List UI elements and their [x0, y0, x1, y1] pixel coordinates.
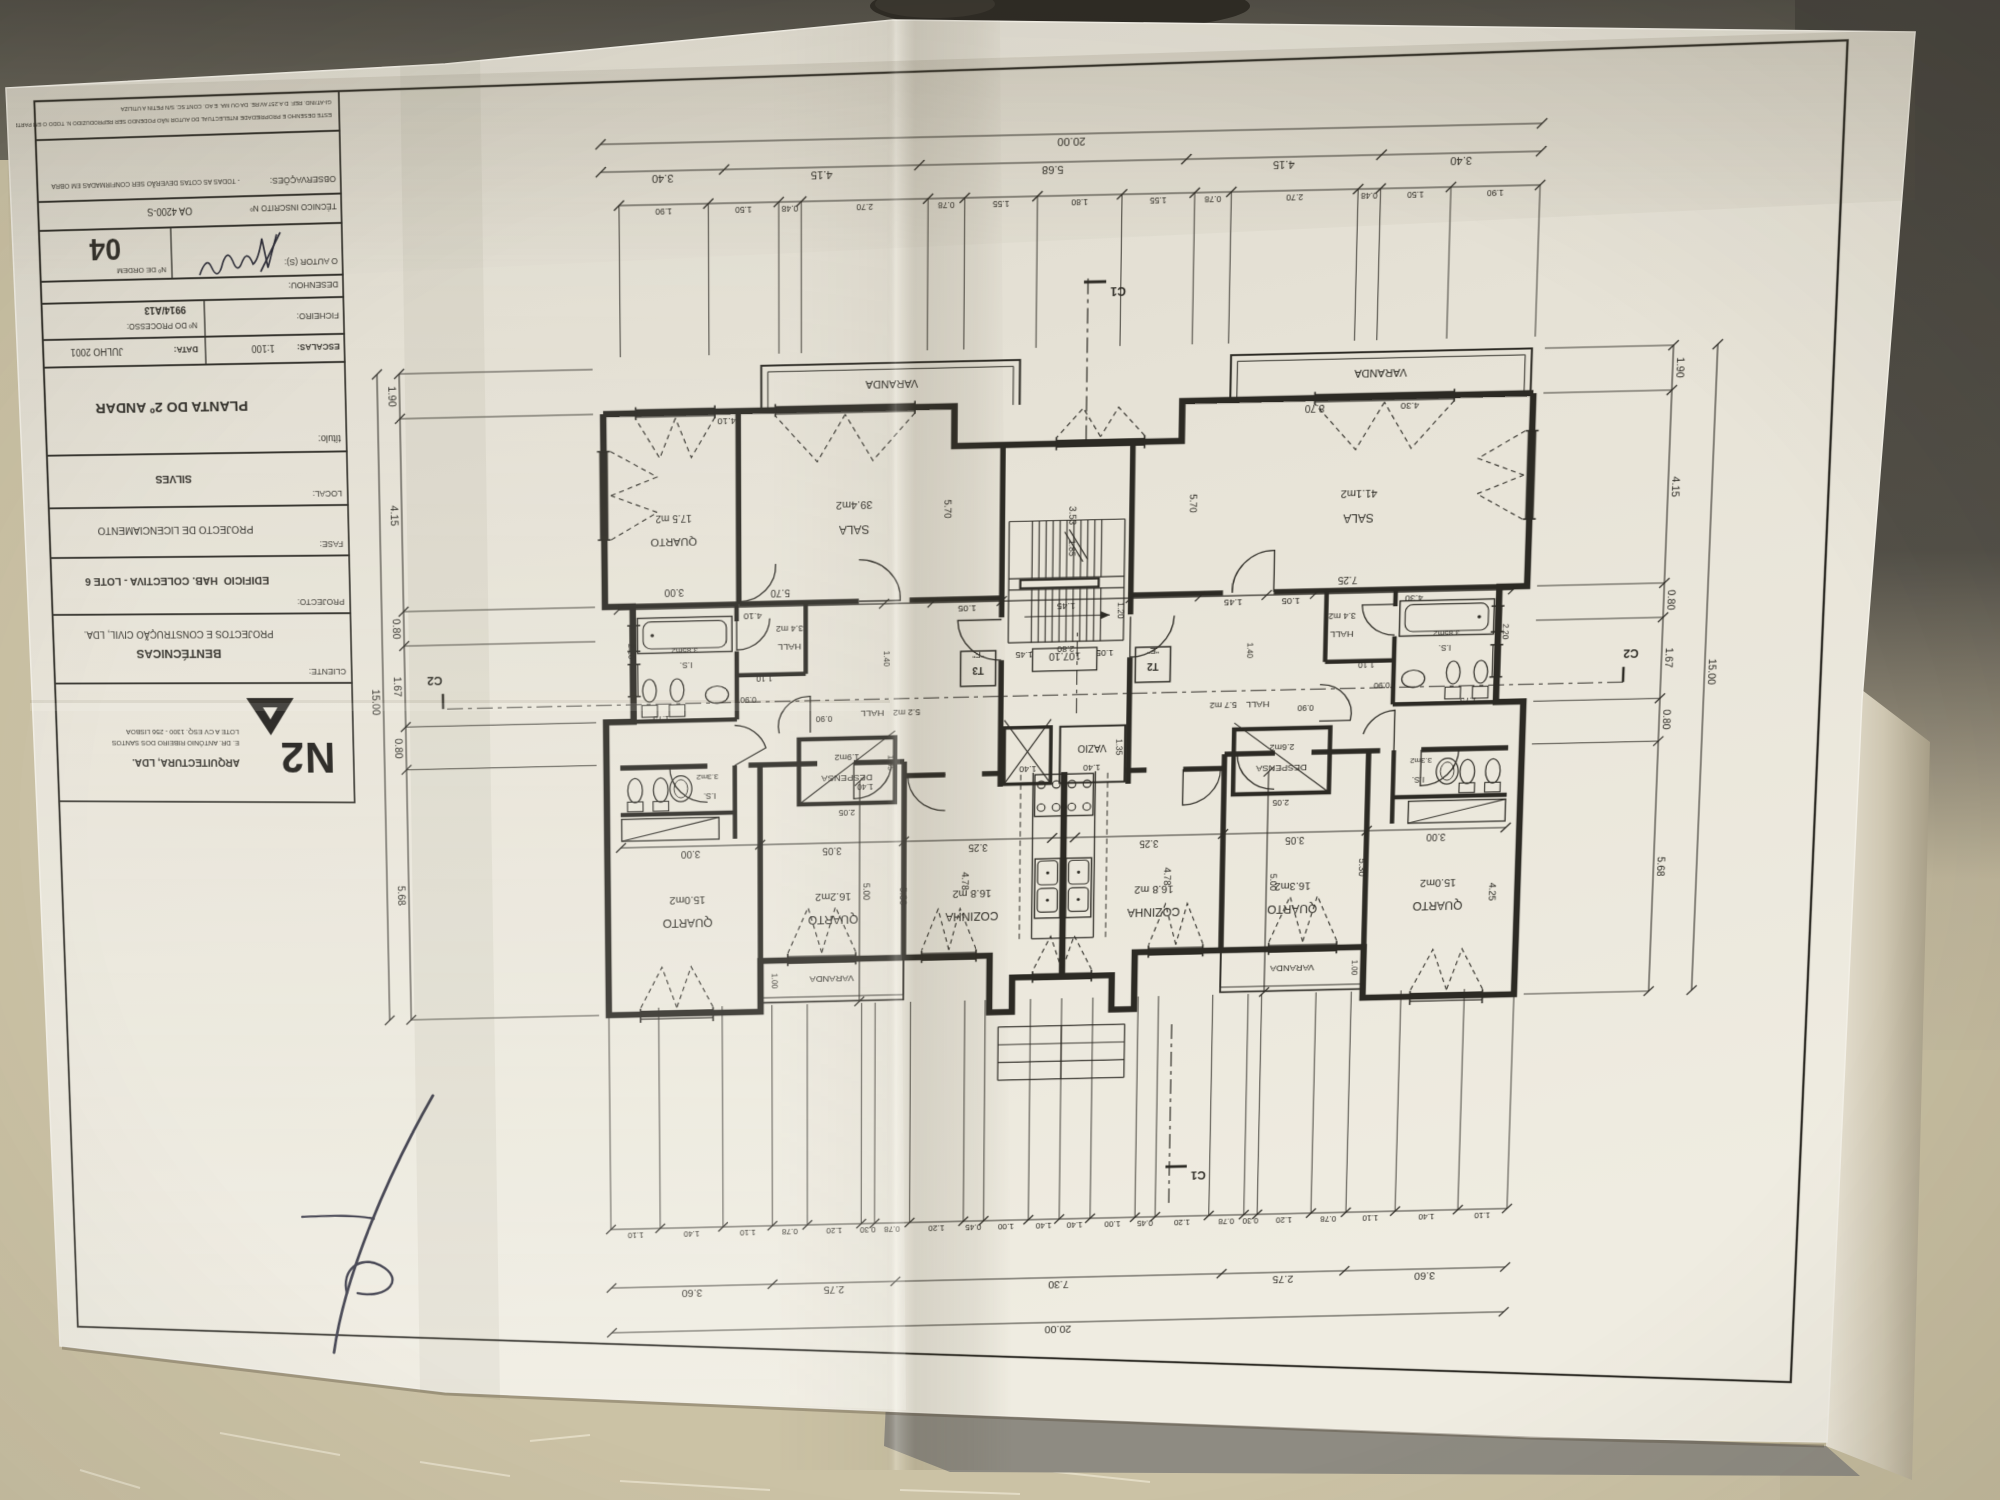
svg-text:2.20: 2.20 — [1500, 624, 1510, 640]
svg-text:8.70: 8.70 — [1305, 402, 1325, 414]
svg-text:15.00: 15.00 — [369, 689, 382, 716]
svg-text:3.85m2: 3.85m2 — [671, 646, 698, 656]
svg-text:QUARTO: QUARTO — [1412, 899, 1462, 912]
svg-text:1.45: 1.45 — [1015, 650, 1033, 660]
svg-text:5.70: 5.70 — [941, 500, 953, 519]
svg-text:0.45: 0.45 — [965, 1223, 982, 1232]
svg-text:4.30: 4.30 — [1401, 401, 1420, 412]
svg-text:3.4 m2: 3.4 m2 — [776, 623, 804, 634]
svg-text:C2: C2 — [1623, 646, 1639, 658]
svg-text:1.40: 1.40 — [1245, 642, 1255, 658]
svg-text:0.78: 0.78 — [1218, 1217, 1235, 1226]
svg-text:39.4m2: 39.4m2 — [836, 498, 873, 511]
svg-text:2.6m2: 2.6m2 — [1269, 742, 1294, 752]
svg-text:VARANDA: VARANDA — [1354, 366, 1407, 379]
svg-text:1.9m2: 1.9m2 — [834, 752, 859, 762]
svg-text:1.00: 1.00 — [770, 973, 779, 989]
svg-text:4.10: 4.10 — [717, 416, 736, 427]
svg-text:1.20: 1.20 — [1173, 1218, 1190, 1227]
svg-text:5.70: 5.70 — [771, 586, 790, 597]
svg-text:1.05: 1.05 — [958, 603, 976, 613]
svg-text:I.S.: I.S. — [680, 660, 693, 669]
svg-text:1.67: 1.67 — [391, 676, 404, 697]
svg-text:1.00: 1.00 — [1350, 960, 1360, 976]
svg-text:15.0m2: 15.0m2 — [669, 893, 705, 906]
svg-text:0.48: 0.48 — [1360, 191, 1377, 201]
svg-text:5.68: 5.68 — [1654, 857, 1667, 877]
svg-text:3.05: 3.05 — [822, 845, 841, 856]
svg-text:16.3m2: 16.3m2 — [1274, 879, 1310, 892]
svg-text:0.80: 0.80 — [1660, 709, 1673, 730]
svg-text:VARANDA: VARANDA — [809, 973, 854, 984]
svg-text:3.25: 3.25 — [1139, 837, 1158, 848]
svg-text:0.78: 0.78 — [937, 200, 954, 210]
svg-text:4.30: 4.30 — [1405, 593, 1424, 603]
svg-text:3.4 m2: 3.4 m2 — [1328, 611, 1356, 622]
svg-text:DESPENSA: DESPENSA — [1255, 762, 1307, 773]
svg-text:VAZIO: VAZIO — [1078, 742, 1107, 754]
svg-text:VARANDA: VARANDA — [865, 377, 918, 390]
svg-text:1.20: 1.20 — [1116, 602, 1127, 619]
svg-text:0.78: 0.78 — [884, 1224, 901, 1233]
svg-text:1.50: 1.50 — [735, 205, 752, 215]
svg-text:5.68: 5.68 — [395, 886, 408, 906]
svg-text:1.05: 1.05 — [1096, 648, 1114, 658]
svg-text:1.10: 1.10 — [739, 1228, 756, 1237]
svg-text:4.78: 4.78 — [959, 872, 970, 890]
svg-text:1.40: 1.40 — [1035, 1221, 1052, 1230]
svg-text:3.60: 3.60 — [681, 1287, 702, 1299]
svg-text:1.90: 1.90 — [1673, 357, 1686, 378]
svg-text:3.00: 3.00 — [1426, 831, 1445, 842]
svg-text:3.00: 3.00 — [681, 848, 700, 859]
svg-text:4.15: 4.15 — [811, 168, 833, 181]
svg-text:5.00: 5.00 — [1268, 873, 1279, 890]
svg-text:0.80: 0.80 — [1664, 590, 1677, 611]
svg-text:2.75: 2.75 — [823, 1283, 844, 1295]
svg-text:C2: C2 — [427, 674, 442, 686]
svg-text:C1: C1 — [1190, 1168, 1206, 1180]
svg-text:7.30: 7.30 — [1048, 1278, 1069, 1290]
svg-text:5.7 m2: 5.7 m2 — [1209, 700, 1237, 711]
svg-text:1.90: 1.90 — [1486, 188, 1504, 198]
svg-text:0.30: 0.30 — [1242, 1216, 1259, 1225]
svg-text:HALL: HALL — [860, 708, 884, 718]
svg-text:2.80: 2.80 — [1057, 644, 1075, 654]
svg-text:2.20: 2.20 — [626, 644, 636, 660]
svg-text:0.78: 0.78 — [781, 1227, 798, 1236]
svg-text:5.00: 5.00 — [861, 883, 871, 900]
svg-text:HALL: HALL — [1246, 699, 1270, 709]
svg-text:1.05: 1.05 — [1281, 596, 1300, 606]
svg-text:1.20: 1.20 — [826, 1226, 842, 1235]
svg-text:2.05: 2.05 — [1272, 798, 1289, 807]
svg-text:T2: T2 — [1147, 660, 1159, 671]
svg-text:QUARTO: QUARTO — [662, 916, 712, 929]
svg-text:1.10: 1.10 — [756, 674, 773, 683]
svg-text:1.55: 1.55 — [1149, 195, 1166, 205]
svg-text:0.90: 0.90 — [815, 714, 832, 723]
svg-text:1.85: 1.85 — [1067, 539, 1078, 556]
svg-text:7.25: 7.25 — [1338, 573, 1358, 584]
svg-text:QUARTO: QUARTO — [808, 913, 858, 926]
svg-text:3.00: 3.00 — [664, 586, 683, 597]
svg-text:I.S.: I.S. — [1438, 643, 1451, 652]
svg-text:3.40: 3.40 — [651, 171, 673, 184]
svg-text:2.70: 2.70 — [1286, 192, 1303, 202]
svg-text:4.78: 4.78 — [1161, 867, 1173, 885]
svg-text:1.50: 1.50 — [1407, 189, 1425, 199]
svg-text:5.2 m2: 5.2 m2 — [893, 707, 920, 718]
svg-text:0.30: 0.30 — [859, 1225, 876, 1234]
svg-text:HALL: HALL — [1330, 629, 1354, 640]
svg-text:C1: C1 — [1110, 284, 1126, 297]
svg-text:0.80: 0.80 — [392, 738, 405, 759]
svg-text:3.53: 3.53 — [1066, 506, 1078, 525]
svg-text:4.15: 4.15 — [1669, 476, 1682, 497]
svg-text:0.90: 0.90 — [1297, 703, 1314, 712]
svg-text:0.78: 0.78 — [1204, 194, 1221, 204]
svg-text:1.75: 1.75 — [652, 714, 669, 723]
svg-text:15.00: 15.00 — [1705, 659, 1719, 686]
svg-text:5.30: 5.30 — [1356, 858, 1368, 876]
svg-text:1.00: 1.00 — [997, 1222, 1014, 1231]
svg-text:20.00: 20.00 — [1057, 134, 1085, 147]
svg-text:HALL: HALL — [778, 641, 802, 652]
svg-text:1.20: 1.20 — [1275, 1215, 1292, 1224]
svg-text:1.40: 1.40 — [1019, 764, 1037, 774]
svg-text:16.2m2: 16.2m2 — [815, 890, 851, 903]
svg-text:T3: T3 — [972, 664, 984, 675]
svg-text:QUARTO: QUARTO — [650, 535, 697, 548]
svg-text:16.8 m2: 16.8 m2 — [952, 887, 991, 900]
svg-text:1.00: 1.00 — [1104, 1219, 1121, 1228]
svg-text:VARANDA: VARANDA — [1269, 962, 1314, 973]
svg-text:3.60: 3.60 — [1414, 1269, 1435, 1281]
svg-text:17.5 m2: 17.5 m2 — [656, 512, 692, 524]
svg-text:1.10: 1.10 — [1362, 1213, 1379, 1222]
svg-text:41.1m2: 41.1m2 — [1340, 487, 1377, 500]
svg-text:0.45: 0.45 — [1136, 1219, 1153, 1228]
svg-text:1.40: 1.40 — [1083, 763, 1101, 773]
svg-text:1.10: 1.10 — [627, 1230, 644, 1239]
svg-text:1.80: 1.80 — [1071, 197, 1088, 207]
svg-text:5.68: 5.68 — [1042, 163, 1064, 176]
svg-text:1.40: 1.40 — [857, 782, 874, 791]
svg-text:3.85m2: 3.85m2 — [1433, 629, 1460, 639]
svg-text:1.10: 1.10 — [1358, 660, 1375, 669]
svg-text:COZINHA: COZINHA — [1127, 905, 1181, 918]
svg-text:1.90: 1.90 — [655, 206, 672, 216]
svg-text:3.25: 3.25 — [968, 841, 987, 852]
svg-text:0.48: 0.48 — [781, 203, 798, 213]
svg-text:1.90: 1.90 — [385, 386, 398, 407]
svg-text:1.40: 1.40 — [1418, 1212, 1435, 1221]
svg-text:0.78: 0.78 — [1320, 1214, 1337, 1223]
svg-text:SALA: SALA — [1343, 510, 1374, 523]
svg-text:1.40: 1.40 — [1066, 1220, 1083, 1229]
svg-text:1.45: 1.45 — [1224, 597, 1243, 607]
svg-text:1.45: 1.45 — [1057, 601, 1075, 611]
svg-text:1.67: 1.67 — [1662, 647, 1675, 668]
svg-text:5.70: 5.70 — [1187, 494, 1199, 513]
svg-text:SALA: SALA — [839, 522, 870, 535]
svg-text:5.30: 5.30 — [897, 887, 908, 905]
svg-text:3.40: 3.40 — [1450, 154, 1472, 167]
svg-text:QUARTO: QUARTO — [1267, 902, 1317, 915]
svg-text:4.10: 4.10 — [744, 611, 762, 621]
svg-text:4.15: 4.15 — [1273, 158, 1295, 171]
svg-text:1.20: 1.20 — [928, 1223, 945, 1232]
svg-text:1.35: 1.35 — [886, 755, 895, 771]
svg-text:1.10: 1.10 — [1474, 1211, 1491, 1220]
svg-text:COZINHA: COZINHA — [945, 909, 998, 922]
svg-text:1.75: 1.75 — [1460, 695, 1477, 704]
svg-text:3.3m2: 3.3m2 — [696, 773, 718, 782]
svg-text:2.05: 2.05 — [838, 808, 855, 817]
svg-text:I.S.: I.S. — [1412, 775, 1425, 784]
svg-text:2.75: 2.75 — [1272, 1273, 1293, 1285]
svg-text:4.15: 4.15 — [387, 505, 400, 526]
svg-text:4.25: 4.25 — [1486, 883, 1498, 901]
svg-text:1.40: 1.40 — [882, 651, 891, 667]
svg-text:15.0m2: 15.0m2 — [1420, 876, 1456, 889]
svg-text:20.00: 20.00 — [1044, 1323, 1071, 1335]
svg-text:I.S.: I.S. — [703, 791, 716, 800]
svg-text:1.40: 1.40 — [683, 1229, 700, 1238]
svg-text:2.70: 2.70 — [856, 202, 873, 212]
svg-text:3.05: 3.05 — [1285, 834, 1304, 845]
svg-text:1.35: 1.35 — [1114, 739, 1125, 756]
svg-text:1.55: 1.55 — [992, 199, 1009, 209]
svg-text:0.80: 0.80 — [390, 619, 403, 640]
